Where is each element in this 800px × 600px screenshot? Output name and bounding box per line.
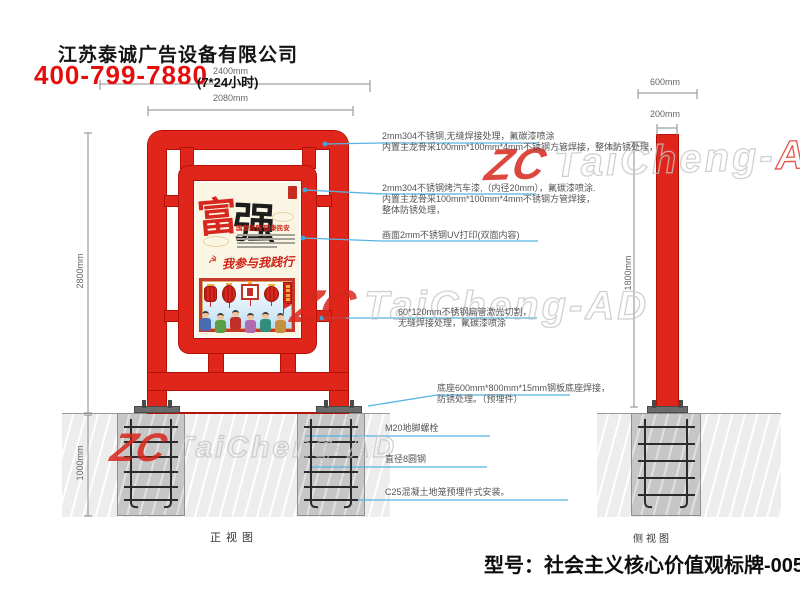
- callout-line: M20地脚螺栓: [385, 423, 439, 434]
- dim-200: 200mm: [650, 109, 680, 119]
- poster-smalltext-line: [237, 246, 277, 248]
- foundation-block-left: [117, 413, 185, 516]
- callout-line: 底座600mm*800mm*15mm钢板底座焊接，: [437, 383, 610, 394]
- lower-post-right: [281, 351, 295, 374]
- dim-2400: 2400mm: [213, 66, 248, 76]
- callout-line: 2mm304不锈钢,无缝焊接处理，氟碳漆喷涂: [382, 131, 658, 142]
- connector-left-lower: [165, 311, 180, 321]
- poster-smalltext-line: [237, 238, 295, 240]
- poster-subtitle: 国富民强 国泰民安: [236, 222, 290, 232]
- foundation-block-right: [297, 413, 365, 516]
- cloud-motif: [203, 236, 229, 247]
- top-post-left: [181, 148, 193, 168]
- side-view-label: 侧视图: [633, 530, 672, 545]
- foundation-block-side: [631, 413, 701, 516]
- callout-line: 内置主龙骨采100mm*100mm*4mm不锈钢方管焊接，: [382, 194, 596, 205]
- figure-head: [247, 313, 254, 320]
- poster-seal: [288, 186, 297, 199]
- callout-base-plate: 底座600mm*800mm*15mm钢板底座焊接， 防锈处理。（预埋件）: [437, 383, 610, 405]
- connector-right-upper: [315, 196, 331, 206]
- front-view-label: 正视图: [210, 529, 258, 545]
- connector-left-upper: [165, 196, 180, 206]
- figure: [200, 318, 211, 331]
- figure-head: [202, 311, 209, 318]
- figure: [245, 320, 256, 333]
- callout-anchor-bolt: M20地脚螺栓: [385, 423, 439, 434]
- callout-line: C25混凝土地笼预埋件式安装。: [385, 487, 510, 498]
- figure-head: [277, 313, 284, 320]
- dim-1000: 1000mm: [75, 430, 85, 496]
- callout-line: 防锈处理。（预埋件）: [437, 394, 610, 405]
- figure: [275, 320, 286, 333]
- callout-round-steel: 直径8圆钢: [385, 454, 426, 465]
- poster-slogan: 我参与我践行: [222, 253, 295, 273]
- anchor-bolt: [168, 400, 172, 408]
- anchor-bolt: [142, 400, 146, 408]
- callout-uv-print: 画面2mm不锈钢UV打印(双面内容): [382, 230, 520, 241]
- lantern-cap: [207, 284, 214, 286]
- figure-head: [232, 310, 239, 317]
- lantern: [264, 286, 279, 302]
- lantern-cap: [226, 283, 232, 285]
- drawing-sheet: 富 强 国富民强 国泰民安 ☭ 我参与我践行: [0, 0, 800, 600]
- callout-concrete: C25混凝土地笼预埋件式安装。: [385, 487, 510, 498]
- flag-pole: [283, 303, 284, 314]
- party-emblem-icon: ☭: [208, 255, 217, 266]
- callout-line: 画面2mm不锈钢UV打印(双面内容): [382, 230, 520, 241]
- dim-1800: 1800mm: [623, 240, 633, 306]
- phone-number: 400-799-7880: [34, 60, 208, 91]
- figure: [230, 317, 241, 330]
- top-post-right: [303, 148, 315, 168]
- lantern-cap: [248, 281, 252, 284]
- dim-2800: 2800mm: [75, 238, 85, 304]
- lantern-tassel: [229, 303, 230, 308]
- connector-right-lower: [315, 311, 331, 321]
- callout-panel-frame: 2mm304不锈钢,无缝焊接处理，氟碳漆喷涂 内置主龙骨采100mm*100mm…: [382, 131, 658, 153]
- poster-smalltext-line: [237, 234, 295, 236]
- lantern: [204, 286, 217, 302]
- base-plate-right: [316, 406, 362, 413]
- callout-line: 60*120mm不锈钢扁管激光切割，: [398, 307, 532, 318]
- anchor-bolt: [652, 400, 656, 408]
- palace-lantern-core: [247, 288, 253, 296]
- anchor-bolt: [324, 400, 328, 408]
- callout-line: 无缝焊接处理，氟碳漆喷涂: [398, 318, 532, 329]
- callout-line: 直径8圆钢: [385, 454, 426, 465]
- bottom-bar: [148, 373, 348, 390]
- callout-line: 内置主龙骨采100mm*100mm*4mm不锈钢方管焊接，整体防锈处理，: [382, 142, 658, 153]
- figure: [215, 320, 226, 333]
- lantern-tassel: [210, 302, 211, 307]
- callout-flat-tube: 60*120mm不锈钢扁管激光切割， 无缝焊接处理，氟碳漆喷涂: [398, 307, 532, 329]
- lantern-tassel: [271, 302, 272, 306]
- figure: [260, 319, 271, 332]
- lower-post-left: [209, 351, 223, 374]
- base-plate-left: [134, 406, 180, 413]
- dim-600: 600mm: [650, 77, 680, 87]
- figure-head: [262, 312, 269, 319]
- lantern-tassel: [250, 300, 251, 306]
- vertical-banner: [283, 282, 292, 304]
- cloud-motif: [272, 212, 294, 222]
- side-pole: [657, 135, 678, 409]
- lantern: [222, 285, 236, 303]
- anchor-bolt: [679, 400, 683, 408]
- lantern-cap: [268, 284, 275, 286]
- callout-line: 整体防锈处理，: [382, 205, 596, 216]
- model-number: 型号：社会主义核心价值观标牌-0057: [484, 549, 800, 578]
- figure-head: [217, 313, 224, 320]
- anchor-bolt: [350, 400, 354, 408]
- dim-2080: 2080mm: [213, 93, 248, 103]
- callout-outer-frame: 2mm304不锈钢烤汽车漆,（内径20mm），氟碳漆喷涂. 内置主龙骨采100m…: [382, 183, 596, 216]
- watermark-text-red: AD: [775, 134, 800, 176]
- callout-line: 2mm304不锈钢烤汽车漆,（内径20mm），氟碳漆喷涂.: [382, 183, 596, 194]
- poster-smalltext-line: [237, 242, 295, 244]
